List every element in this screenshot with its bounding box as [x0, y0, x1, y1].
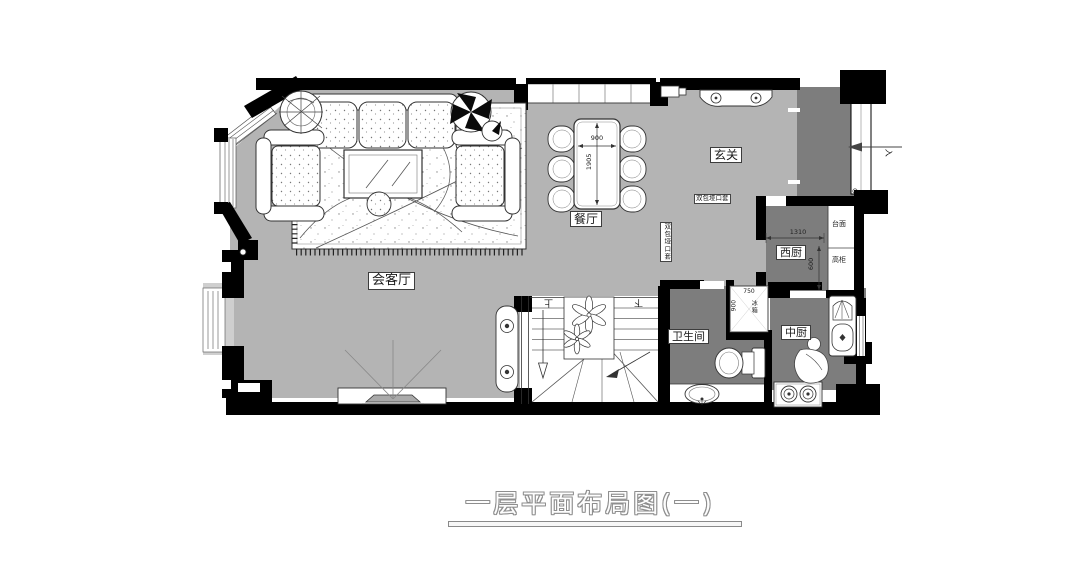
gas-stove-icon: [774, 382, 822, 407]
coffee-table: [344, 150, 422, 198]
door-frame-symbol: [661, 86, 686, 97]
door-casing-annotation-horizontal: 双包垭口套: [694, 194, 731, 204]
countertop-annotation: 台面: [832, 220, 846, 228]
counter-column: [828, 205, 856, 298]
ottoman: [367, 192, 391, 216]
living-room-label: 会客厅: [368, 272, 415, 290]
floor-plan-canvas: 会客厅 餐厅 玄关 卫生间 西厨 中厨 双包垭口套 双包垭口套 台面 高柜 冰箱…: [0, 0, 1074, 576]
dining-furniture: [548, 119, 646, 212]
dining-window: [527, 84, 653, 103]
door-casing-annotation-vertical: 双包垭口套: [660, 222, 672, 262]
armchair-left: [256, 130, 324, 221]
fridge-width-dim: 750: [736, 288, 762, 295]
porch-floor: [797, 87, 856, 203]
drawing-title: 一层平面布局图(一): [465, 489, 715, 518]
radiator-console: [496, 306, 518, 392]
dining-room-label: 餐厅: [570, 211, 602, 227]
fridge-annotation: 冰箱: [750, 300, 757, 314]
armchair-right: [452, 130, 520, 221]
bathroom-label: 卫生间: [668, 329, 709, 344]
drawing-title-block: 一层平面布局图(一): [440, 484, 740, 520]
dining-table: [574, 119, 620, 209]
stairs-down-label: 下: [634, 296, 643, 307]
west-kitchen-label: 西厨: [776, 245, 806, 260]
dining-table-length-dim: 1905: [586, 147, 594, 177]
console-table: [700, 90, 772, 106]
stairs-up-label: 上: [544, 296, 553, 307]
bay-window-left: [220, 138, 236, 208]
kitchen-sink-icon: [829, 296, 856, 356]
stair-planter: [563, 296, 614, 359]
fridge-depth-dim: 900: [730, 294, 737, 318]
foyer-label: 玄关: [710, 147, 742, 163]
tall-cabinet-annotation: 高柜: [832, 256, 846, 264]
lower-left-window: [203, 288, 225, 352]
west-kitchen-width-dim: 1310: [778, 229, 818, 237]
title-underline: [448, 521, 742, 527]
dining-table-width-dim: 900: [586, 135, 608, 143]
entry-direction-label: 入: [883, 149, 893, 157]
west-kitchen-depth-dim: 600: [808, 252, 816, 276]
chinese-kitchen-label: 中厨: [781, 325, 811, 340]
